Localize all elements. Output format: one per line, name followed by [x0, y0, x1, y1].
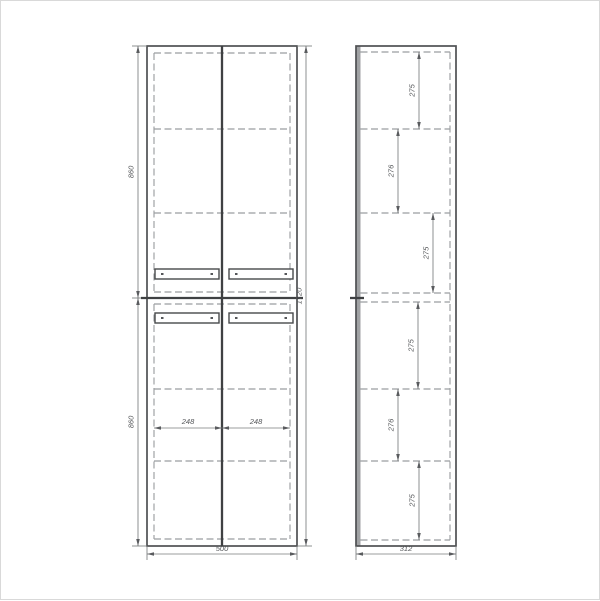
- dim-arrowhead: [147, 552, 154, 556]
- dim-arrowhead: [304, 46, 308, 53]
- dim-arrowhead: [396, 206, 400, 213]
- dim-label-shelf-spacing-2: 276: [387, 164, 396, 178]
- dim-label-shelf-spacing-3: 275: [422, 246, 431, 260]
- handle-bar: [229, 269, 293, 279]
- dim-arrowhead: [356, 552, 363, 556]
- dim-arrowhead: [396, 389, 400, 396]
- dim-label-shelf-spacing-1: 275: [408, 83, 417, 97]
- handle-screw: [161, 273, 164, 275]
- door-handle: [155, 269, 219, 279]
- dim-label-upper-section-height: 860: [127, 165, 136, 178]
- handle-screw: [211, 317, 214, 319]
- dim-label-overall-width: 500: [216, 544, 229, 553]
- dim-label-lower-section-height: 860: [127, 415, 136, 428]
- dim-arrowhead: [417, 122, 421, 129]
- side-hidden-lines: [361, 52, 451, 540]
- handle-screw: [161, 317, 164, 319]
- dim-label-shelf-spacing-4: 275: [407, 338, 416, 352]
- dim-arrowhead: [449, 552, 456, 556]
- dim-arrowhead: [396, 129, 400, 136]
- door-handle: [155, 313, 219, 323]
- dim-arrowhead: [431, 213, 435, 220]
- dim-label-left-door-width: 248: [181, 417, 195, 426]
- dim-label-right-door-width: 248: [249, 417, 263, 426]
- side-outline: [356, 46, 456, 546]
- dim-arrowhead: [416, 302, 420, 309]
- handle-screw: [235, 273, 238, 275]
- handle-screw: [211, 273, 214, 275]
- handle-screw: [235, 317, 238, 319]
- dim-arrowhead: [283, 426, 290, 430]
- dim-arrowhead: [417, 461, 421, 468]
- handle-bar: [155, 269, 219, 279]
- dim-arrowhead: [136, 298, 140, 305]
- dim-label-overall-depth: 312: [400, 544, 413, 553]
- dim-arrowhead: [154, 426, 161, 430]
- front-view: 8608601720500248248: [127, 46, 313, 560]
- dim-arrowhead: [417, 52, 421, 59]
- dim-label-shelf-spacing-5: 276: [387, 418, 396, 432]
- handle-bar: [229, 313, 293, 323]
- dim-label-shelf-spacing-6: 275: [408, 493, 417, 507]
- dim-arrowhead: [136, 539, 140, 546]
- dim-arrowhead: [416, 382, 420, 389]
- handle-screw: [285, 273, 288, 275]
- dim-arrowhead: [396, 454, 400, 461]
- dim-arrowhead: [290, 552, 297, 556]
- drawing-sheet: 8608601720500248248275276275275276275312: [0, 0, 600, 600]
- dim-arrowhead: [431, 286, 435, 293]
- handle-screw: [285, 317, 288, 319]
- handle-bar: [155, 313, 219, 323]
- door-handle: [229, 269, 293, 279]
- dim-arrowhead: [136, 291, 140, 298]
- side-view: 275276275275276275312: [350, 46, 456, 560]
- dim-arrowhead: [136, 46, 140, 53]
- dim-arrowhead: [304, 539, 308, 546]
- side-dimensions: 275276275275276275312: [356, 52, 456, 560]
- door-handle: [229, 313, 293, 323]
- cabinet-technical-drawing: 8608601720500248248275276275275276275312: [1, 1, 600, 601]
- dim-arrowhead: [417, 533, 421, 540]
- dim-label-overall-height: 1720: [295, 287, 304, 305]
